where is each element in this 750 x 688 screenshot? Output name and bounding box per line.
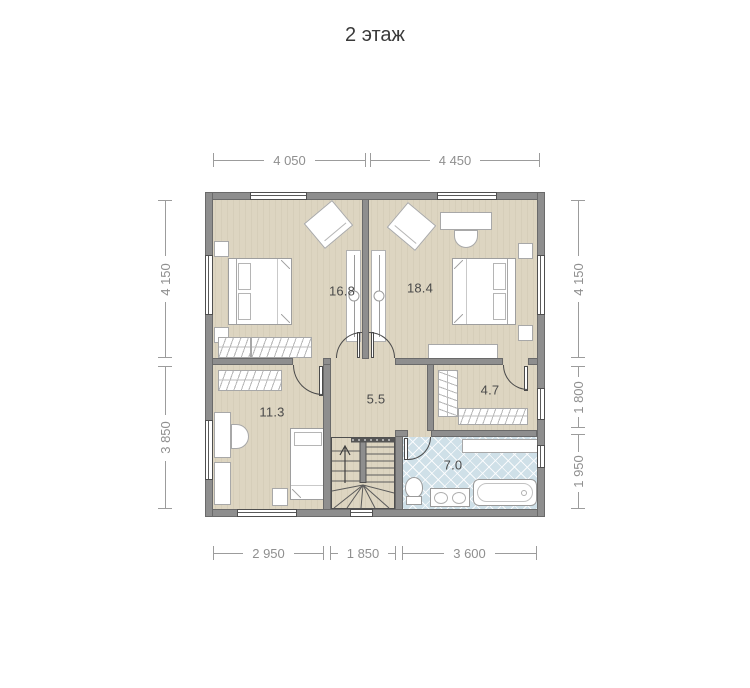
dim-label: 4 150 xyxy=(158,263,173,296)
dim-bottom-1: 2 950 xyxy=(213,543,324,563)
room-area-label: 11.3 xyxy=(259,405,284,420)
dim-right-3: 1 950 xyxy=(568,434,588,509)
wardrobe xyxy=(438,370,458,417)
interior-wall-hall-left xyxy=(323,364,331,510)
bed-headboard xyxy=(507,259,515,324)
dim-tick xyxy=(571,357,585,358)
blanket-fold xyxy=(454,260,463,269)
mirror-knob xyxy=(373,291,384,302)
double-bed xyxy=(452,258,516,325)
pillow xyxy=(294,432,322,446)
window xyxy=(350,509,373,517)
floor-plan: 16.8 18.4 11.3 5.5 4.7 7.0 xyxy=(205,192,545,517)
dim-label: 4 450 xyxy=(430,153,481,168)
dim-tick xyxy=(571,427,585,428)
dim-tick xyxy=(571,366,585,367)
pillow xyxy=(493,263,506,290)
window xyxy=(237,509,297,517)
toilet-tank xyxy=(406,496,422,505)
window xyxy=(437,192,497,200)
dim-label: 1 950 xyxy=(571,455,586,488)
floor-plan-page: 2 этаж 4 050 4 450 2 950 1 850 3 600 4 1… xyxy=(0,0,750,688)
dim-tick xyxy=(213,546,214,560)
dim-tick xyxy=(539,153,540,167)
dim-right-2: 1 800 xyxy=(568,366,588,428)
wardrobe xyxy=(458,408,528,425)
dim-tick xyxy=(158,508,172,509)
dim-tick xyxy=(395,546,396,560)
blanket-fold xyxy=(281,260,290,269)
dim-top-1: 4 050 xyxy=(213,150,366,170)
pillow xyxy=(238,263,251,290)
dim-tick xyxy=(571,200,585,201)
interior-wall xyxy=(395,358,503,365)
exterior-wall-right xyxy=(537,192,545,517)
dim-label: 3 600 xyxy=(444,546,495,561)
dim-tick xyxy=(402,546,403,560)
page-title: 2 этаж xyxy=(0,24,750,47)
floor-opening-edge xyxy=(351,438,395,443)
interior-wall-bathroom-left xyxy=(395,436,403,510)
shelf-cabinet xyxy=(214,462,231,505)
dim-label: 3 850 xyxy=(158,421,173,454)
blanket-line xyxy=(291,485,325,486)
sink-basin xyxy=(452,492,466,504)
wardrobe xyxy=(251,337,312,358)
staircase xyxy=(331,437,395,509)
toilet xyxy=(405,477,423,498)
room-area-label: 5.5 xyxy=(367,392,386,407)
blanket-fold xyxy=(281,314,290,323)
dim-left-1: 4 150 xyxy=(155,200,175,358)
blanket-fold xyxy=(292,489,301,498)
dim-tick xyxy=(158,200,172,201)
dim-label: 4 150 xyxy=(571,263,586,296)
bathtub-drain xyxy=(521,490,527,496)
desk xyxy=(214,412,231,458)
stairs-up-arrow xyxy=(340,446,350,483)
nightstand xyxy=(272,488,288,506)
dim-label: 1 800 xyxy=(571,381,586,414)
dim-label: 4 050 xyxy=(264,153,315,168)
room-area-label: 7.0 xyxy=(444,458,463,473)
dim-right-1: 4 150 xyxy=(568,200,588,358)
dim-tick xyxy=(158,357,172,358)
dim-bottom-3: 3 600 xyxy=(402,543,537,563)
interior-wall-closet-left xyxy=(427,364,434,431)
nightstand xyxy=(214,241,229,257)
nightstand xyxy=(518,325,533,341)
interior-wall xyxy=(212,358,293,365)
single-bed xyxy=(290,428,326,500)
window xyxy=(537,255,545,315)
interior-wall-bedroom-divider xyxy=(362,199,369,359)
dim-tick xyxy=(536,546,537,560)
tall-mirror-cabinet xyxy=(371,250,386,342)
wardrobe xyxy=(218,370,282,391)
dim-tick xyxy=(213,153,214,167)
pillow xyxy=(238,293,251,320)
dim-tick xyxy=(323,546,324,560)
dim-tick xyxy=(158,366,172,367)
dim-label: 1 850 xyxy=(338,546,389,561)
room-area-label: 16.8 xyxy=(329,284,355,299)
dim-top-2: 4 450 xyxy=(370,150,540,170)
dim-tick xyxy=(365,153,366,167)
room-area-label: 4.7 xyxy=(481,383,500,398)
dim-label: 2 950 xyxy=(243,546,294,561)
sink-basin xyxy=(434,492,448,504)
sink-vanity xyxy=(430,488,470,507)
dim-tick xyxy=(330,546,331,560)
pillow xyxy=(493,293,506,320)
interior-wall-bathroom-top xyxy=(431,430,537,437)
window xyxy=(537,445,545,468)
blanket-line xyxy=(466,259,467,324)
window xyxy=(250,192,307,200)
window xyxy=(537,388,545,420)
bathtub xyxy=(473,479,537,506)
blanket-line xyxy=(277,259,278,324)
interior-wall xyxy=(528,358,538,365)
room-area-label: 18.4 xyxy=(407,281,433,296)
dim-bottom-2: 1 850 xyxy=(330,543,396,563)
dim-tick xyxy=(571,434,585,435)
desk xyxy=(440,212,492,230)
dim-left-2: 3 850 xyxy=(155,366,175,509)
bathroom-shelf xyxy=(462,439,538,453)
dim-tick xyxy=(571,508,585,509)
window xyxy=(205,420,213,480)
blanket-fold xyxy=(454,314,463,323)
nightstand xyxy=(518,243,533,259)
bed-headboard xyxy=(229,259,237,324)
dim-tick xyxy=(370,153,371,167)
double-bed xyxy=(228,258,292,325)
wardrobe xyxy=(218,337,251,358)
window xyxy=(205,255,213,315)
